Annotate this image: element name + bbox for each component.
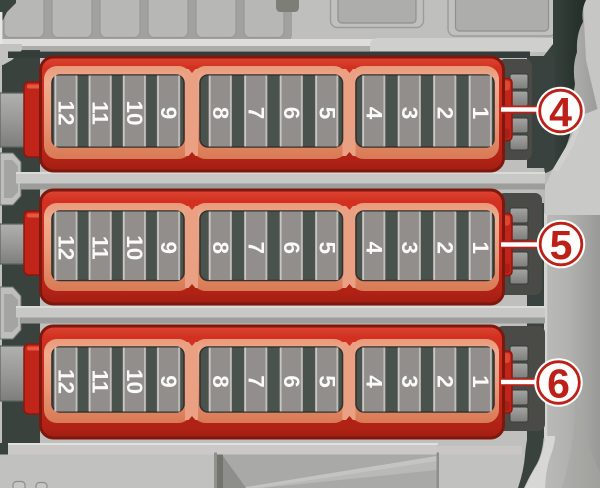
svg-text:8: 8 — [208, 375, 233, 388]
svg-text:1: 1 — [468, 375, 493, 388]
svg-text:12: 12 — [53, 235, 78, 260]
svg-text:9: 9 — [156, 375, 181, 388]
svg-text:3: 3 — [397, 107, 422, 120]
svg-text:10: 10 — [122, 100, 147, 125]
svg-text:11: 11 — [88, 370, 113, 394]
svg-text:7: 7 — [243, 107, 268, 120]
svg-text:7: 7 — [243, 375, 268, 388]
svg-text:9: 9 — [156, 107, 181, 120]
svg-text:3: 3 — [397, 241, 422, 254]
svg-text:1: 1 — [468, 107, 493, 120]
svg-text:4: 4 — [361, 107, 386, 120]
svg-text:4: 4 — [549, 89, 572, 135]
svg-text:12: 12 — [53, 369, 78, 394]
svg-text:4: 4 — [361, 241, 386, 254]
svg-text:11: 11 — [88, 101, 113, 125]
svg-text:10: 10 — [122, 369, 147, 394]
svg-text:3: 3 — [397, 375, 422, 388]
svg-text:6: 6 — [279, 241, 304, 254]
svg-text:8: 8 — [208, 241, 233, 254]
svg-text:5: 5 — [314, 107, 339, 120]
svg-text:1: 1 — [468, 241, 493, 254]
svg-text:4: 4 — [361, 375, 386, 388]
svg-text:9: 9 — [156, 241, 181, 254]
svg-text:10: 10 — [122, 235, 147, 260]
svg-text:2: 2 — [432, 241, 457, 254]
svg-text:6: 6 — [279, 107, 304, 120]
svg-text:2: 2 — [432, 107, 457, 120]
svg-text:6: 6 — [547, 361, 570, 407]
svg-text:7: 7 — [243, 241, 268, 254]
svg-text:5: 5 — [550, 222, 573, 268]
svg-text:5: 5 — [314, 375, 339, 388]
svg-text:6: 6 — [279, 375, 304, 388]
svg-text:11: 11 — [88, 236, 113, 260]
svg-text:2: 2 — [432, 375, 457, 388]
svg-text:12: 12 — [53, 100, 78, 125]
svg-text:8: 8 — [208, 107, 233, 120]
svg-text:5: 5 — [314, 241, 339, 254]
